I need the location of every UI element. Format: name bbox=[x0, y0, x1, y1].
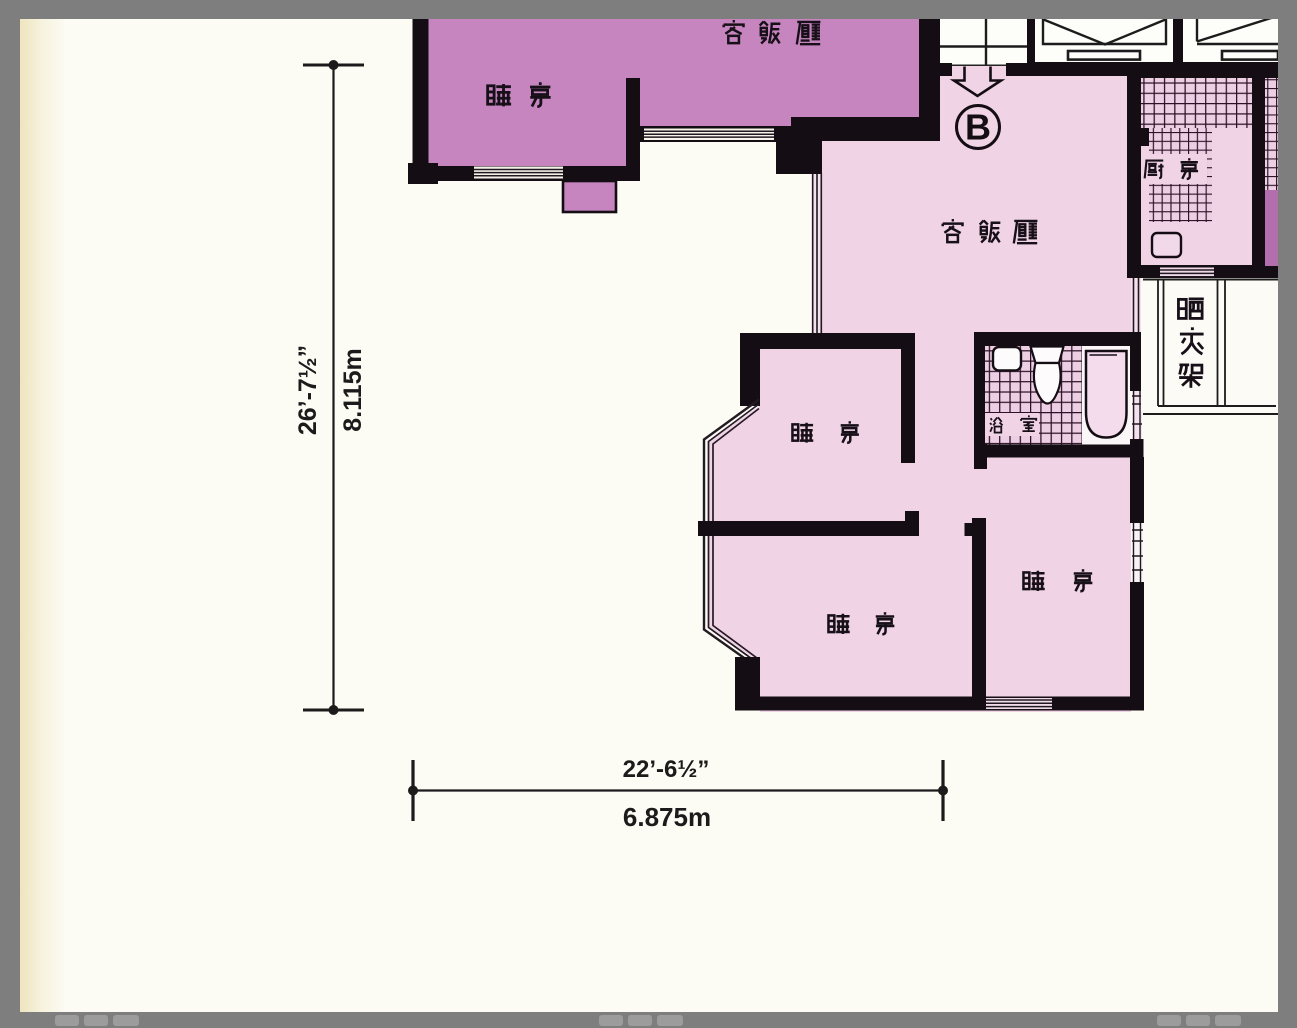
svg-text:22’-6½”: 22’-6½” bbox=[623, 756, 710, 783]
svg-text:6.875m: 6.875m bbox=[623, 802, 711, 832]
svg-text:B: B bbox=[965, 107, 991, 148]
svg-text:8.115m: 8.115m bbox=[339, 348, 367, 431]
svg-text:26’-7½”: 26’-7½” bbox=[294, 345, 322, 435]
